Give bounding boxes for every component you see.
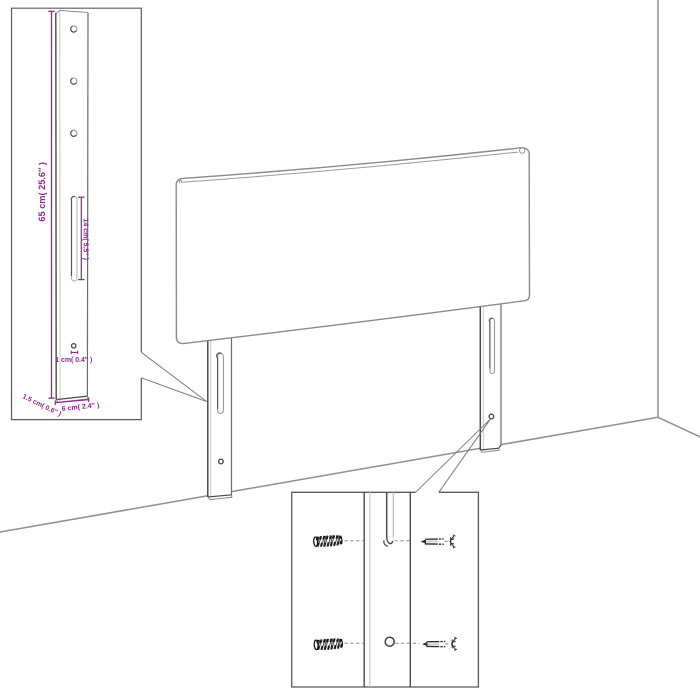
svg-text:65 cm( 25.6″ ): 65 cm( 25.6″ ) [37, 162, 47, 222]
svg-text:1 cm( 0.4″ ): 1 cm( 0.4″ ) [55, 357, 92, 364]
svg-text:14 cm( 5.5″ ): 14 cm( 5.5″ ) [81, 218, 88, 259]
